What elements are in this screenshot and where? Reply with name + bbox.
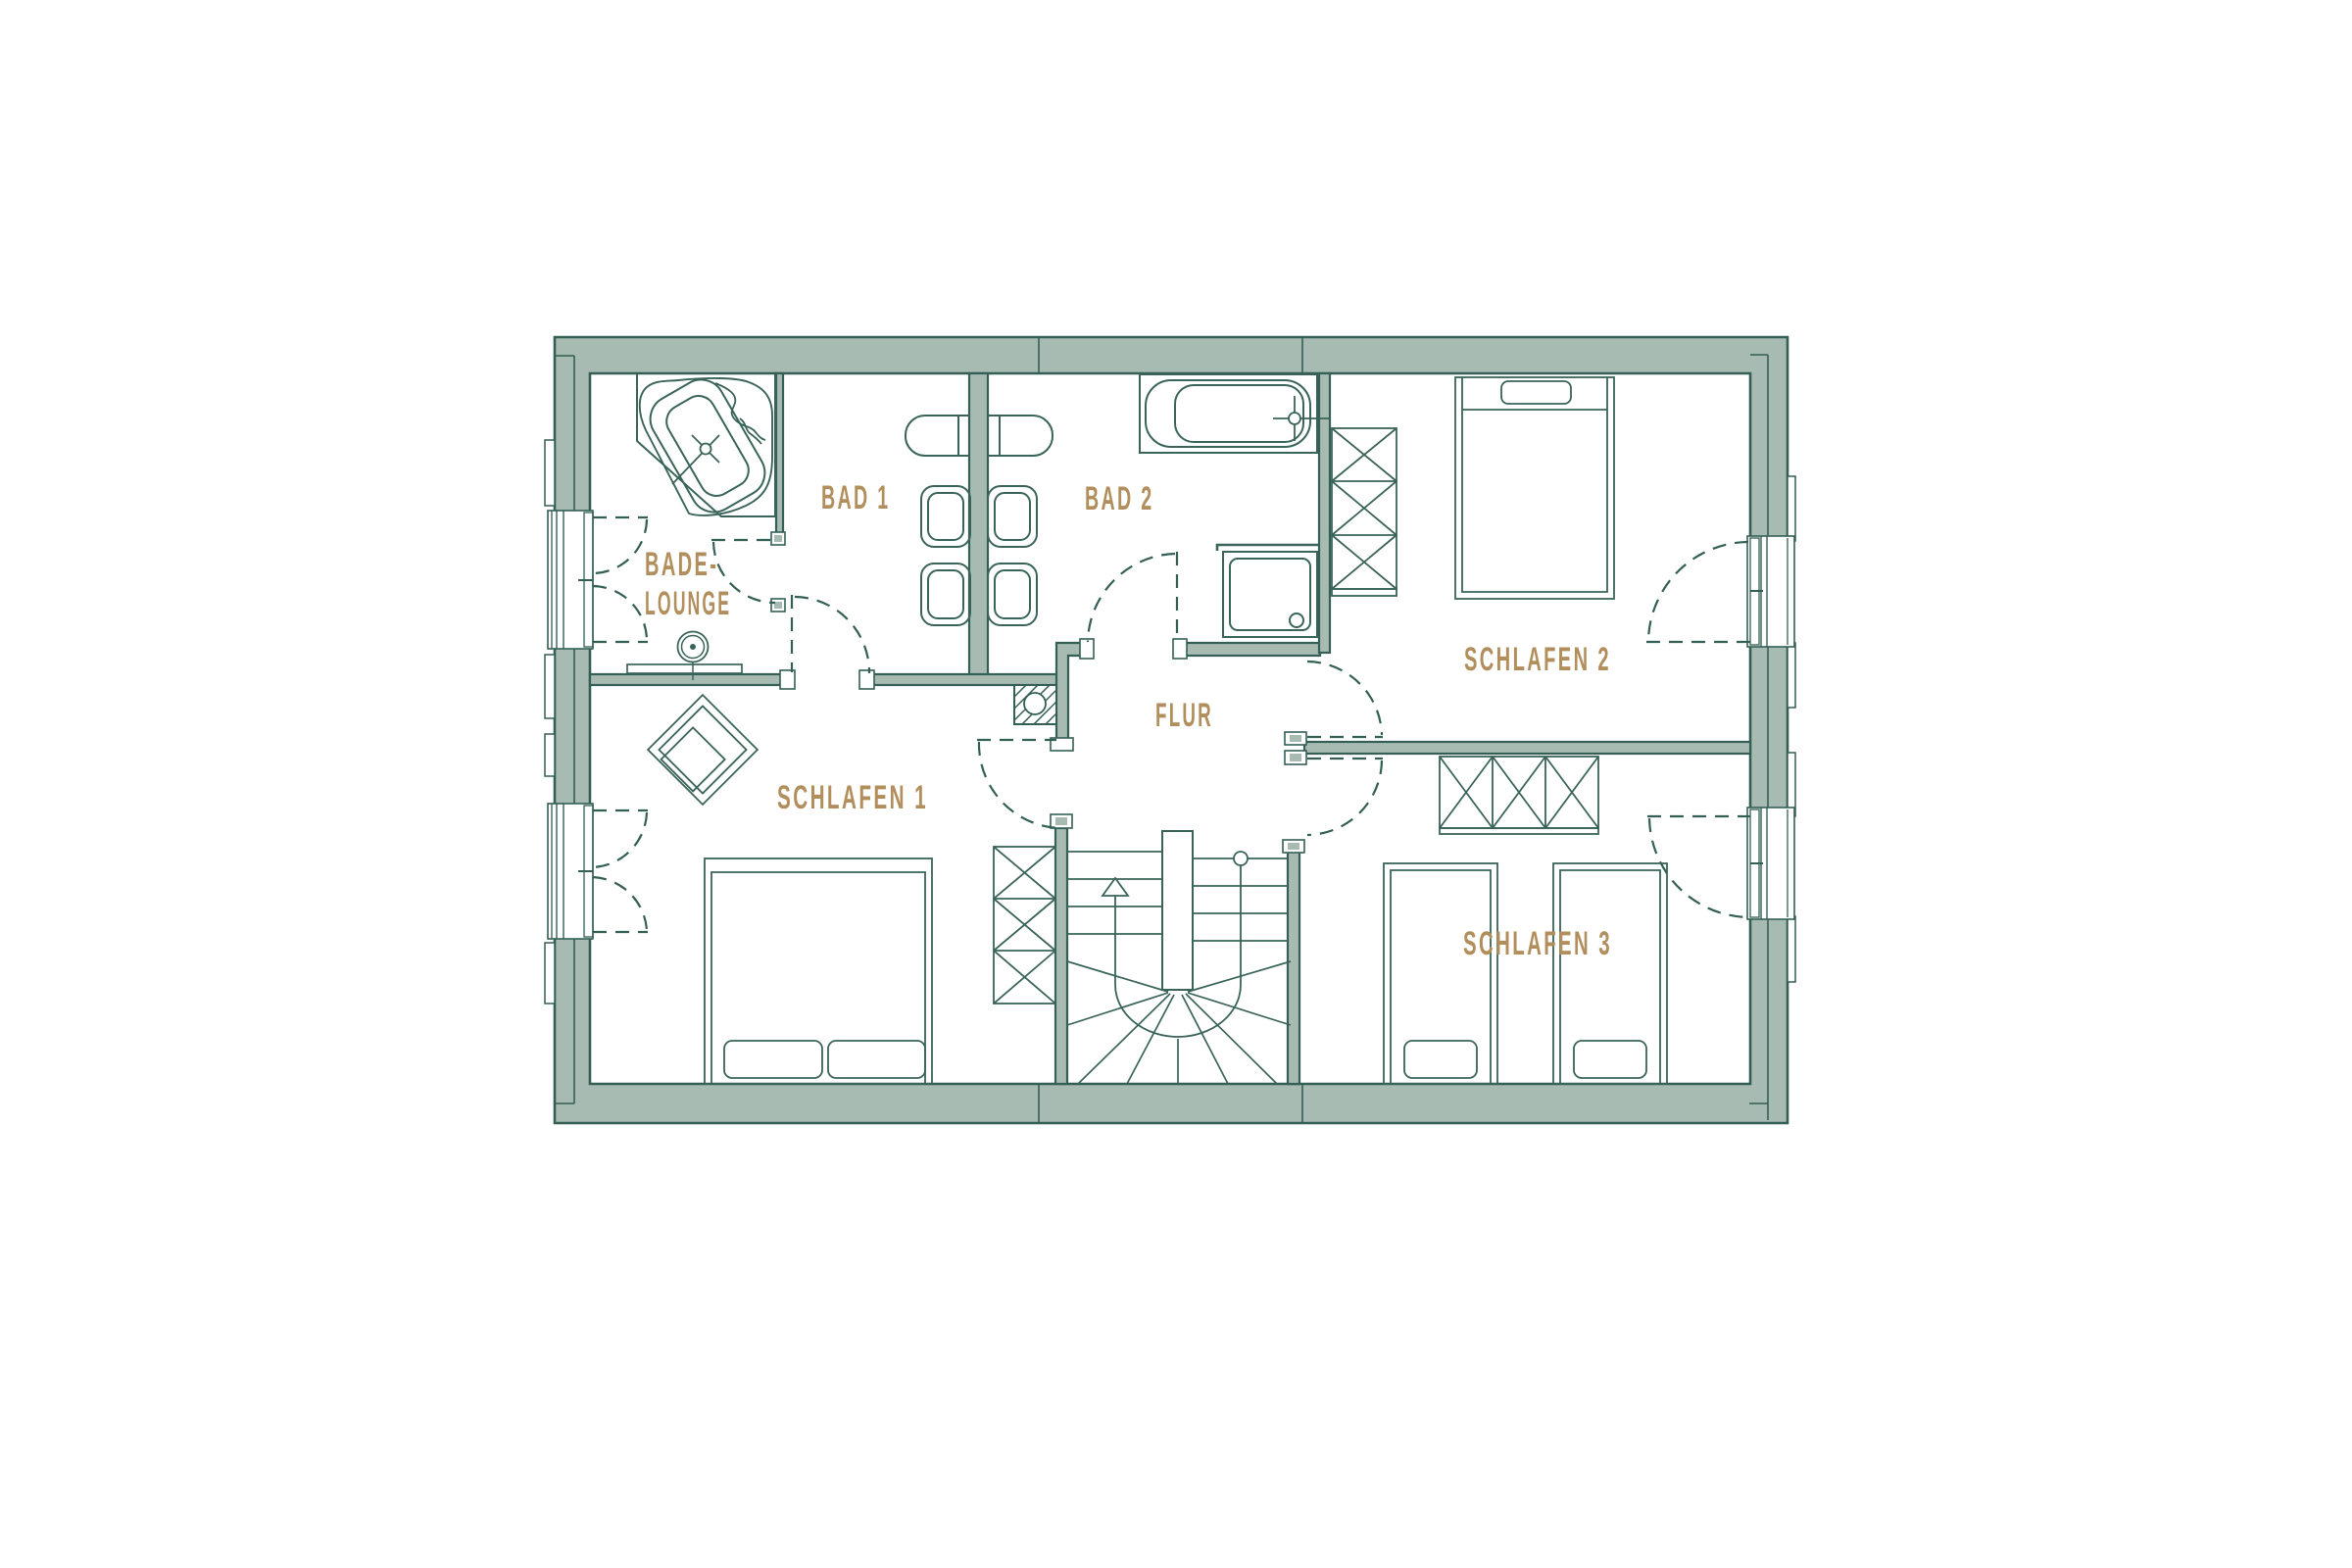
svg-text:LOUNGE: LOUNGE [645, 584, 731, 622]
svg-text:FLUR: FLUR [1155, 696, 1213, 733]
svg-text:SCHLAFEN 3: SCHLAFEN 3 [1463, 925, 1612, 962]
svg-text:BAD 1: BAD 1 [821, 478, 890, 515]
svg-text:SCHLAFEN 1: SCHLAFEN 1 [777, 779, 928, 815]
svg-text:SCHLAFEN 2: SCHLAFEN 2 [1464, 641, 1611, 678]
svg-text:BAD 2: BAD 2 [1085, 479, 1153, 516]
svg-text:BADE-: BADE- [645, 546, 718, 583]
